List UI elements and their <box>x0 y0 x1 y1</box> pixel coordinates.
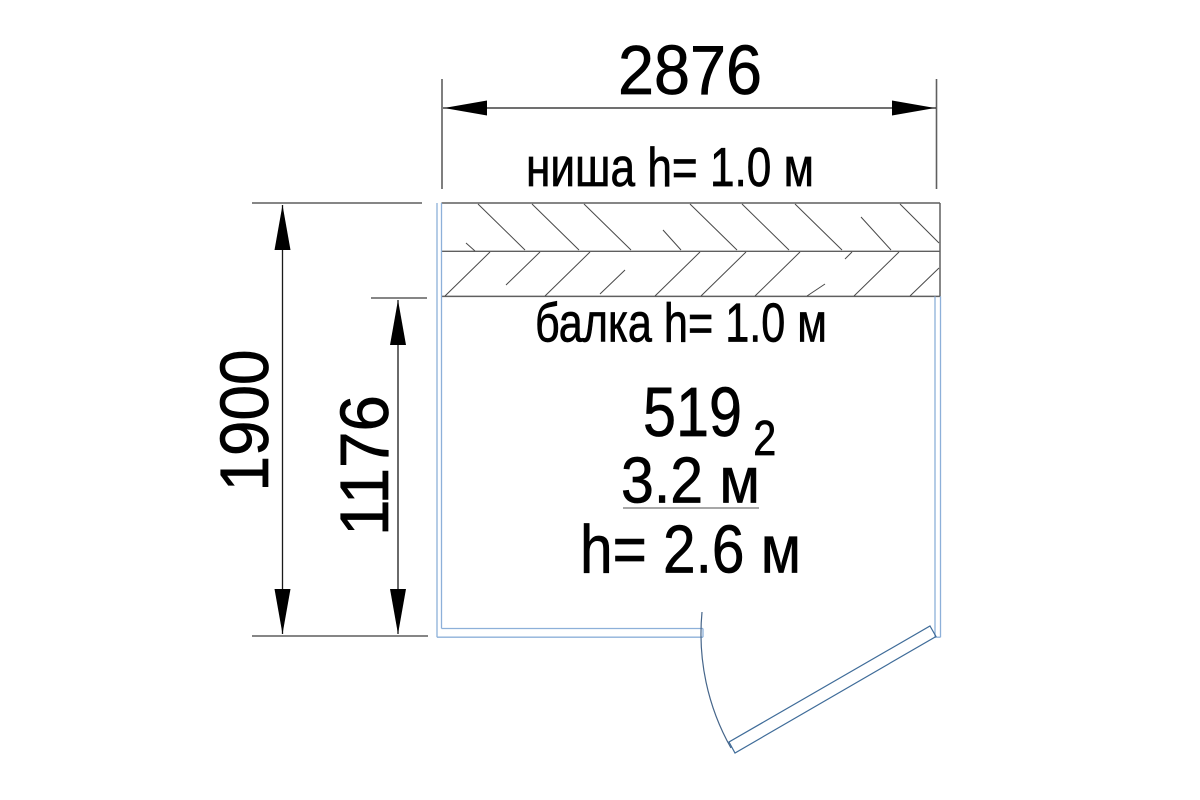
svg-text:2876: 2876 <box>618 31 762 109</box>
svg-text:ниша h= 1.0 м: ниша h= 1.0 м <box>526 136 814 198</box>
svg-text:3.2 м: 3.2 м <box>621 445 760 517</box>
svg-text:519: 519 <box>643 373 742 451</box>
svg-text:h= 2.6 м: h= 2.6 м <box>580 512 801 588</box>
svg-text:1176: 1176 <box>326 395 403 536</box>
svg-text:балка h= 1.0 м: балка h= 1.0 м <box>535 292 827 354</box>
svg-text:1900: 1900 <box>206 350 283 492</box>
